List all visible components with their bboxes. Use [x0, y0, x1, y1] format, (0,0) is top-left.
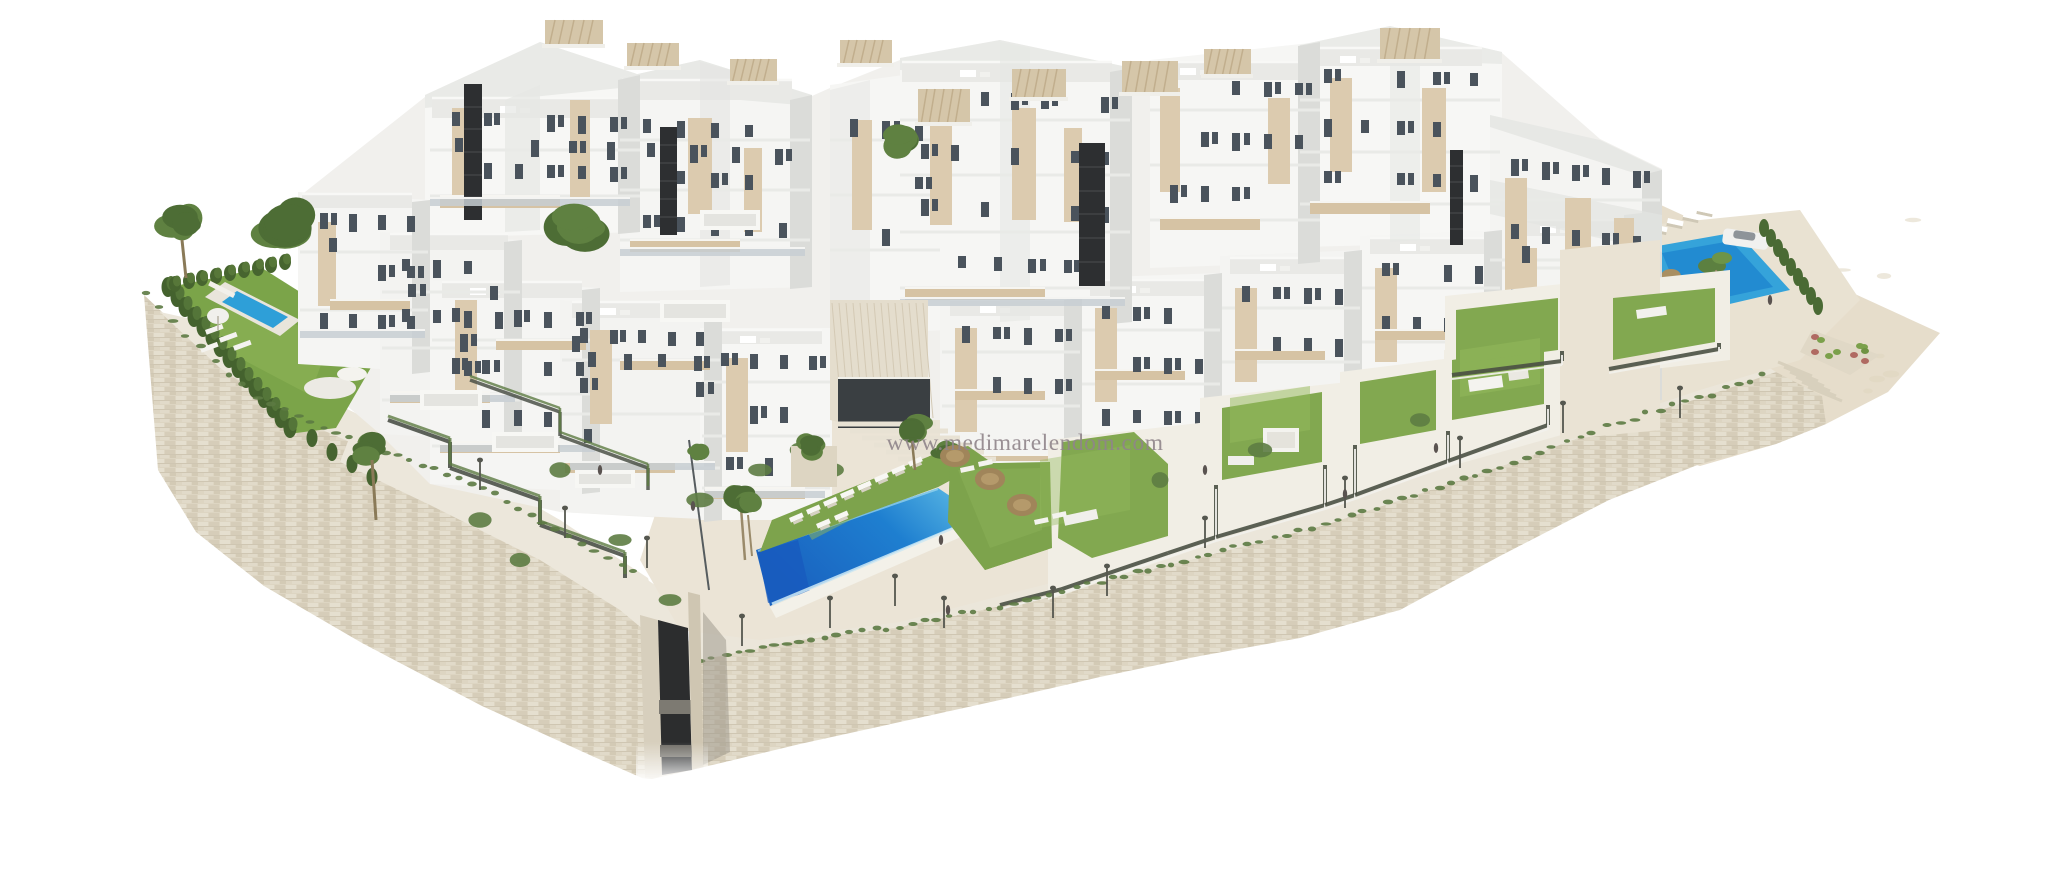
svg-text:www.medimarelendom.com: www.medimarelendom.com	[886, 430, 1163, 456]
